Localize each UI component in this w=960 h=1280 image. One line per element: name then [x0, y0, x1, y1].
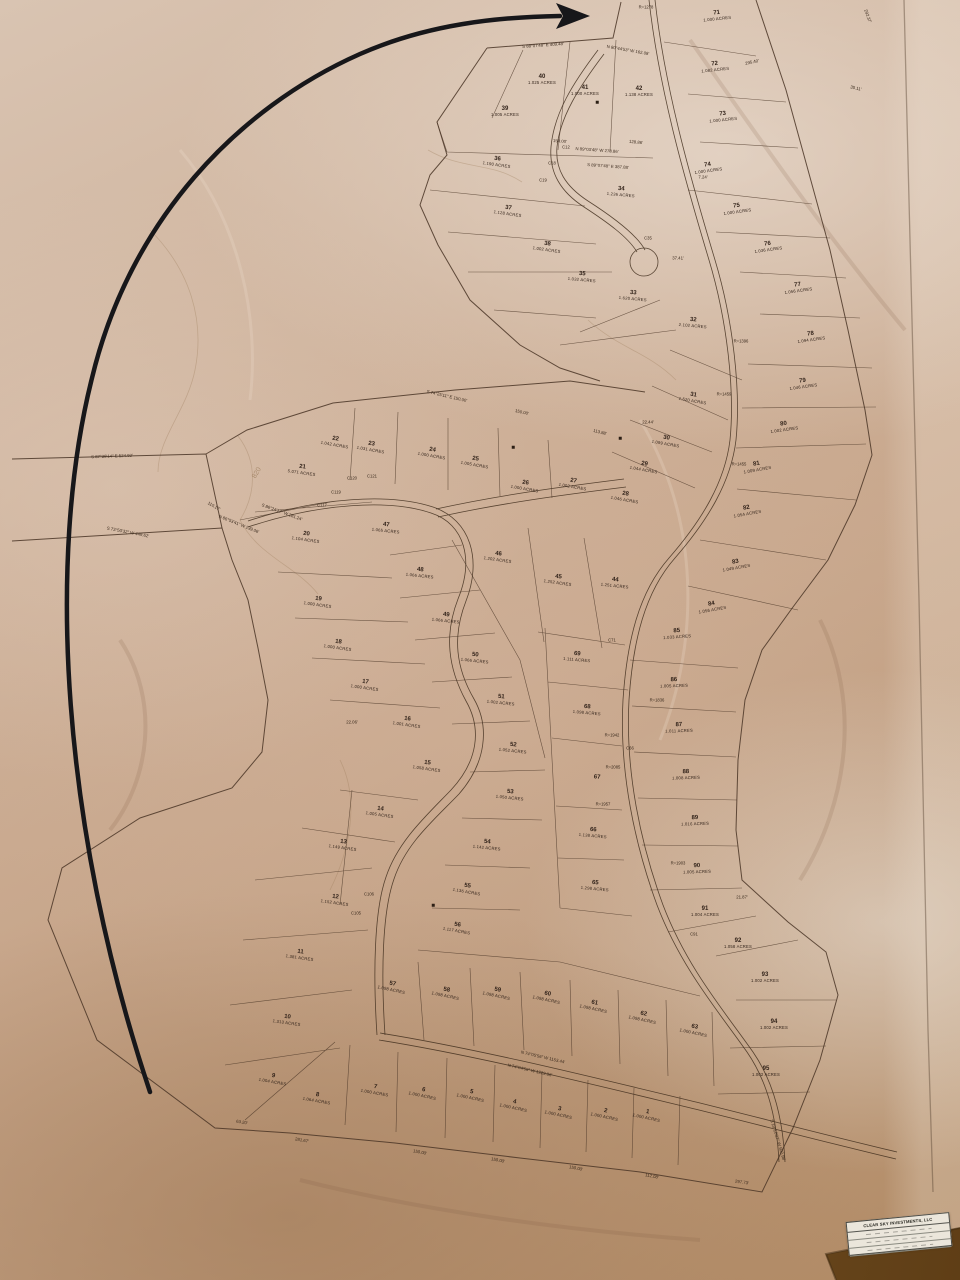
lot-label: 341.236 ACRES: [607, 185, 636, 199]
bearing-distance-label: 22.44': [642, 420, 654, 425]
curve-label: C91: [690, 932, 698, 937]
bearing-distance-label: 150.00': [569, 1164, 584, 1172]
lot-acreage: 1.094 ACRES: [797, 336, 825, 345]
lot-label: 261.000 ACRES: [510, 478, 540, 494]
curve-label: C18: [548, 161, 556, 166]
bearing-distance-label: S 86°24'17" W 281.24': [261, 502, 303, 521]
lot-label: 751.000 ACRES: [722, 201, 751, 217]
curve-label: R=2085: [606, 765, 621, 770]
lot-label: 951.002 ACRES: [752, 1066, 780, 1078]
lot-label: 271.002 ACRES: [558, 476, 588, 492]
lot-label: 291.044 ACRES: [629, 459, 659, 475]
lot-label: 851.033 ACRES: [663, 627, 692, 641]
lot-acreage: 1.066 ACRES: [431, 618, 459, 626]
plat-text-labels: 11.000 ACRES21.000 ACRES31.000 ACRES41.0…: [0, 0, 960, 1280]
lot-label: 911.004 ACRES: [691, 906, 719, 918]
bearing-distance-label: N 74°05'56" W 1153.44': [520, 1049, 565, 1064]
lot-label: 215.071 ACRES: [287, 462, 316, 478]
curve-label: C19: [539, 178, 547, 183]
lot-label: 601.098 ACRES: [532, 988, 562, 1005]
lot-label: 861.005 ACRES: [660, 677, 688, 690]
lot-label: 41.000 ACRES: [499, 1096, 529, 1113]
lot-label: 811.009 ACRES: [742, 459, 772, 475]
lot-acreage: 1.046 ACRES: [789, 383, 817, 392]
lot-acreage: 1.066 ACRES: [460, 658, 488, 666]
contour-elevation-label: 820: [251, 466, 263, 480]
lot-label: 111.381 ACRES: [285, 947, 314, 963]
lot-acreage: 1.008 ACRES: [672, 776, 700, 782]
lot-label: 221.042 ACRES: [320, 434, 350, 450]
lot-label: 141.005 ACRES: [365, 804, 394, 820]
lot-label: 351.032 ACRES: [568, 270, 597, 284]
lot-label: 721.082 ACRES: [700, 60, 729, 75]
lot-acreage: 1.058 ACRES: [724, 945, 752, 950]
bearing-distance-label: 37.41': [672, 256, 684, 261]
lot-label: 101.313 ACRES: [272, 1012, 301, 1028]
lot-acreage: 1.050 ACRES: [495, 795, 523, 803]
curve-label: R=1459: [717, 392, 732, 397]
bearing-distance-label: N 89°03'48" W 278.86': [575, 146, 618, 154]
lot-acreage: 1.002 ACRES: [486, 700, 514, 708]
lot-label: 121.152 ACRES: [320, 892, 349, 908]
lot-label: 461.202 ACRES: [483, 549, 512, 565]
curve-label: C35: [644, 236, 652, 241]
bearing-distance-label: 295.40': [745, 58, 760, 66]
bearing-distance-label: S 74°25'11" E 150.00': [426, 389, 467, 403]
lot-label: 881.008 ACRES: [672, 769, 700, 782]
lot-label: 371.128 ACRES: [493, 203, 522, 219]
lot-label: 581.098 ACRES: [431, 984, 461, 1001]
bearing-distance-label: 150.00': [491, 1156, 506, 1164]
curve-label: C117: [317, 503, 327, 508]
bearing-distance-label: 21.87': [736, 895, 748, 900]
lot-acreage: 1.236 ACRES: [607, 192, 635, 199]
lot-acreage: 1.098 ACRES: [573, 710, 601, 717]
curve-label: C105: [351, 911, 361, 916]
lot-label: 71.000 ACRES: [360, 1082, 390, 1098]
lot-label: 901.005 ACRES: [683, 863, 711, 876]
lot-label: 791.046 ACRES: [788, 376, 817, 392]
lot-label: 451.252 ACRES: [543, 572, 572, 588]
lot-acreage: 1.004 ACRES: [691, 913, 719, 918]
lot-label: 322.102 ACRES: [679, 316, 708, 330]
bearing-distance-label: S 10°10'27" W 502.98': [769, 1119, 786, 1161]
lot-acreage: 1.005 ACRES: [683, 870, 711, 876]
lot-label: 551.136 ACRES: [452, 881, 482, 897]
bearing-distance-label: 150.00': [553, 138, 567, 144]
lot-label: 931.002 ACRES: [751, 972, 779, 984]
lot-label: 521.052 ACRES: [498, 741, 527, 756]
lot-label: 741.000 ACRES: [693, 160, 722, 176]
bearing-distance-label: 110.17': [207, 500, 221, 511]
lot-label: 761.036 ACRES: [753, 239, 782, 255]
survey-marker-icon: [619, 437, 622, 440]
lot-label: 651.298 ACRES: [581, 879, 610, 893]
lot-label: 801.002 ACRES: [769, 419, 798, 435]
lot-label: 631.000 ACRES: [679, 1021, 709, 1038]
lot-label: 711.000 ACRES: [702, 9, 731, 24]
lot-label: 21.000 ACRES: [590, 1105, 620, 1122]
lot-label: 691.111 ACRES: [563, 650, 591, 664]
lot-label: 151.058 ACRES: [412, 758, 441, 774]
lot-label: 301.099 ACRES: [651, 433, 681, 449]
curve-label: R=1942: [605, 733, 620, 738]
bearing-distance-label: S 87°38'14" E 524.92': [91, 453, 133, 459]
survey-marker-icon: [512, 446, 515, 449]
lot-label: 161.001 ACRES: [392, 714, 421, 730]
bearing-distance-label: 22.06': [346, 720, 358, 725]
lot-label: 251.005 ACRES: [460, 454, 490, 470]
lot-acreage: 1.025 ACRES: [528, 81, 556, 86]
lot-label: 231.031 ACRES: [356, 439, 386, 455]
lot-label: 61.000 ACRES: [408, 1084, 438, 1101]
bearing-distance-label: 113.88': [593, 428, 607, 436]
lot-label: 891.016 ACRES: [681, 815, 709, 828]
lot-label: 311.520 ACRES: [678, 390, 708, 406]
lot-acreage: 1.033 ACRES: [663, 634, 691, 641]
lot-label: 941.002 ACRES: [760, 1019, 788, 1031]
lot-acreage: 1.032 ACRES: [568, 277, 596, 284]
curve-label: R=1903: [671, 861, 686, 866]
lot-acreage: 1.002 ACRES: [752, 1073, 780, 1078]
bearing-distance-label: N 80°44'53" W 162.08': [606, 44, 649, 56]
survey-marker-icon: [432, 904, 435, 907]
bearing-distance-label: S 73°50'32" W 449.62': [106, 525, 149, 538]
lot-acreage: 1.056 ACRES: [784, 287, 812, 296]
lot-label: 511.002 ACRES: [486, 693, 515, 708]
lot-label: 831.049 ACRES: [721, 557, 751, 573]
lot-label: 481.066 ACRES: [405, 566, 434, 581]
bearing-distance-label: S 89°07'48" E 387.88': [587, 162, 629, 170]
lot-acreage: 1.002 ACRES: [751, 979, 779, 984]
lot-label: 31.000 ACRES: [544, 1103, 574, 1120]
lot-acreage: 1.000 ACRES: [709, 117, 737, 125]
lot-acreage: 1.011 ACRES: [665, 729, 693, 735]
lot-acreage: 1.002 ACRES: [770, 426, 798, 435]
bearing-distance-label: N 74°04'56" W 1229.86': [507, 1062, 552, 1077]
bearing-distance-label: 297.73': [735, 1179, 750, 1186]
lot-number: 67: [593, 774, 600, 781]
bearing-distance-label: 7.24': [698, 175, 707, 180]
survey-marker-icon: [596, 101, 599, 104]
lot-acreage: 1.066 ACRES: [405, 573, 433, 581]
lot-label: 571.098 ACRES: [377, 978, 407, 995]
lot-acreage: 1.002 ACRES: [760, 1026, 788, 1031]
lot-label: 781.094 ACRES: [796, 329, 825, 345]
lot-label: 171.000 ACRES: [350, 677, 379, 693]
photo-of-subdivision-plat: 11.000 ACRES21.000 ACRES31.000 ACRES41.0…: [0, 0, 960, 1280]
lot-label: 391.005 ACRES: [491, 106, 519, 118]
curve-label: C121: [367, 474, 377, 479]
lot-label: 871.011 ACRES: [665, 722, 693, 735]
lot-label: 51.000 ACRES: [456, 1086, 486, 1103]
lot-acreage: 1.138 ACRES: [625, 93, 653, 98]
lot-label: 181.000 ACRES: [323, 637, 352, 653]
lot-label: 201.104 ACRES: [291, 529, 320, 545]
curve-label: C106: [364, 892, 374, 897]
lot-label: 731.000 ACRES: [708, 110, 737, 125]
lot-label: 281.046 ACRES: [610, 489, 640, 505]
lot-label: 561.117 ACRES: [442, 920, 471, 936]
lot-acreage: 2.102 ACRES: [679, 323, 707, 330]
curve-label: R=1278: [639, 5, 654, 10]
lot-label: 501.066 ACRES: [460, 651, 489, 666]
lot-label: 471.065 ACRES: [371, 521, 400, 536]
lot-label: 591.098 ACRES: [482, 984, 512, 1001]
lot-label: 531.050 ACRES: [495, 788, 524, 803]
curve-label: C119: [331, 490, 341, 495]
lot-label: 241.000 ACRES: [417, 445, 447, 461]
lot-acreage: 1.251 ACRES: [600, 583, 628, 591]
curve-label: R=1836: [650, 698, 665, 703]
bearing-distance-label: 35.11': [850, 84, 862, 91]
bearing-distance-label: S 88°07'48" E 409.48': [522, 41, 564, 49]
lot-label: 621.098 ACRES: [628, 1008, 658, 1025]
bearing-distance-label: 292.37': [863, 9, 872, 24]
curve-label: C120: [347, 476, 357, 481]
lot-label: 611.098 ACRES: [579, 997, 609, 1014]
lot-label: 361.190 ACRES: [482, 154, 511, 170]
lot-acreage: 1.005 ACRES: [491, 113, 519, 118]
lot-acreage: 1.142 ACRES: [472, 845, 500, 853]
lot-label: 91.004 ACRES: [258, 1071, 288, 1087]
lot-acreage: 1.016 ACRES: [681, 822, 709, 828]
lot-label: 841.056 ACRES: [697, 599, 727, 615]
lot-label: 661.138 ACRES: [579, 826, 608, 840]
bearing-distance-label: 112.08': [645, 1172, 659, 1180]
lot-label: 541.142 ACRES: [472, 838, 501, 853]
lot-label: 441.251 ACRES: [600, 576, 629, 591]
curve-label: C71: [608, 638, 616, 643]
lot-acreage: 1.000 ACRES: [571, 92, 599, 97]
lot-label: 421.138 ACRES: [625, 86, 653, 98]
bearing-distance-label: 128.86': [629, 139, 643, 145]
lot-acreage: 1.036 ACRES: [754, 246, 782, 255]
lot-acreage: 1.052 ACRES: [498, 748, 526, 756]
lot-label: 821.054 ACRES: [732, 503, 762, 519]
lot-acreage: 1.000 ACRES: [723, 208, 751, 217]
lot-acreage: 1.000 ACRES: [703, 16, 731, 24]
curve-label: R=1396: [734, 339, 749, 344]
bearing-distance-label: 63.20': [236, 1119, 248, 1126]
lot-label: 67: [593, 774, 600, 781]
bearing-distance-label: 281.67': [295, 1136, 310, 1143]
lot-acreage: 1.082 ACRES: [701, 67, 729, 75]
lot-label: 11.000 ACRES: [632, 1106, 662, 1123]
lot-label: 921.058 ACRES: [724, 938, 752, 950]
lot-label: 771.056 ACRES: [783, 280, 812, 296]
curve-label: C12: [562, 145, 570, 150]
lot-label: 191.000 ACRES: [303, 594, 332, 610]
lot-acreage: 1.138 ACRES: [579, 833, 607, 840]
lot-label: 381.002 ACRES: [532, 239, 561, 255]
bearing-distance-label: N 86°53'41" W 239.06': [218, 514, 260, 535]
bearing-distance-label: 150.00': [515, 408, 530, 416]
lot-label: 81.064 ACRES: [302, 1090, 332, 1106]
lot-label: 411.000 ACRES: [571, 85, 599, 97]
lot-label: 491.066 ACRES: [431, 611, 460, 626]
lot-acreage: 1.005 ACRES: [660, 684, 688, 690]
lot-acreage: 1.298 ACRES: [581, 886, 609, 893]
bearing-distance-label: 150.00': [413, 1148, 428, 1156]
lot-acreage: 1.065 ACRES: [371, 528, 399, 536]
lot-label: 401.025 ACRES: [528, 74, 556, 86]
lot-label: 331.620 ACRES: [619, 289, 648, 303]
lot-acreage: 1.111 ACRES: [563, 657, 591, 664]
curve-label: C66: [626, 746, 634, 751]
lot-acreage: 1.620 ACRES: [619, 296, 647, 303]
lot-label: 681.098 ACRES: [573, 703, 602, 717]
lot-label: 131.149 ACRES: [328, 837, 357, 853]
curve-label: R=1957: [596, 802, 611, 807]
curve-label: R=1455: [732, 462, 747, 467]
